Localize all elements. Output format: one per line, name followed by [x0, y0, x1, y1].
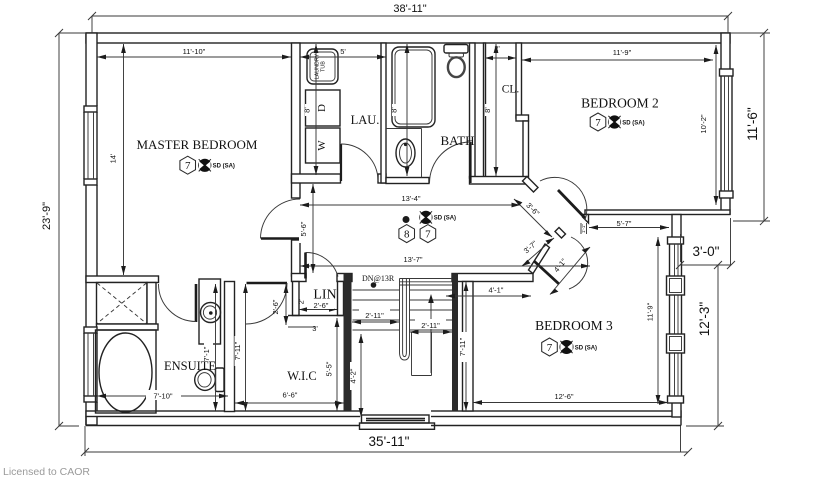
svg-text:13'-7": 13'-7" — [403, 255, 422, 264]
svg-text:3': 3' — [312, 324, 318, 333]
svg-text:14': 14' — [109, 153, 118, 163]
svg-text:11'-9": 11'-9" — [613, 48, 632, 57]
svg-text:7: 7 — [547, 342, 553, 354]
svg-text:SD (SA): SD (SA) — [434, 216, 456, 222]
svg-text:23'-9": 23'-9" — [41, 202, 53, 230]
svg-text:7'-11": 7'-11" — [458, 337, 467, 356]
svg-text:W: W — [316, 140, 328, 151]
svg-text:11'-6": 11'-6" — [745, 107, 760, 141]
svg-text:LAU.: LAU. — [351, 113, 380, 127]
svg-text:LIN: LIN — [313, 288, 336, 303]
svg-text:2': 2' — [297, 298, 306, 304]
svg-text:BEDROOM 3: BEDROOM 3 — [535, 318, 613, 333]
svg-text:2'-11": 2'-11" — [365, 311, 384, 320]
svg-text:SD (SA): SD (SA) — [213, 164, 235, 170]
svg-text:4'-2": 4'-2" — [349, 368, 358, 383]
svg-text:CL.: CL. — [502, 84, 520, 96]
svg-text:8: 8 — [404, 229, 410, 241]
svg-text:MASTER BEDROOM: MASTER BEDROOM — [137, 137, 258, 152]
svg-text:8': 8' — [390, 107, 399, 113]
svg-text:1'-1": 1'-1" — [581, 224, 586, 233]
svg-text:11'-9": 11'-9" — [646, 302, 655, 321]
svg-text:4'-1": 4'-1" — [489, 286, 504, 295]
svg-text:SD (SA): SD (SA) — [622, 120, 644, 126]
svg-text:D: D — [316, 104, 328, 112]
svg-text:BATH: BATH — [441, 133, 475, 148]
svg-text:3'-0": 3'-0" — [693, 244, 720, 259]
svg-text:38'-11": 38'-11" — [393, 3, 426, 15]
svg-text:12'-6": 12'-6" — [554, 392, 573, 401]
svg-text:8': 8' — [483, 107, 492, 113]
svg-text:Licensed to CAOR: Licensed to CAOR — [3, 466, 90, 478]
svg-text:5'-7": 5'-7" — [617, 219, 632, 228]
svg-text:10'-2": 10'-2" — [699, 114, 708, 133]
svg-text:7: 7 — [185, 160, 191, 172]
svg-text:2'-6": 2'-6" — [271, 299, 280, 314]
svg-text:SD (SA): SD (SA) — [575, 345, 597, 351]
svg-text:TUB: TUB — [321, 61, 327, 72]
svg-text:7: 7 — [595, 117, 601, 129]
svg-text:11'-10": 11'-10" — [183, 47, 206, 56]
svg-text:7'-11": 7'-11" — [233, 341, 242, 360]
svg-text:13'-4": 13'-4" — [401, 194, 420, 203]
svg-text:35'-11": 35'-11" — [369, 434, 410, 449]
svg-text:DN@13R: DN@13R — [362, 274, 395, 283]
svg-text:12'-3": 12'-3" — [697, 302, 712, 337]
svg-text:BEDROOM 2: BEDROOM 2 — [581, 96, 659, 111]
svg-text:5'-6": 5'-6" — [299, 221, 308, 236]
svg-text:2'-11": 2'-11" — [421, 321, 440, 330]
svg-text:W.I.C: W.I.C — [287, 369, 316, 383]
svg-text:ENSUITE: ENSUITE — [164, 359, 216, 373]
svg-text:6'-6": 6'-6" — [283, 391, 298, 400]
svg-text:5'-5": 5'-5" — [325, 361, 334, 376]
svg-text:7: 7 — [425, 229, 431, 241]
svg-text:8': 8' — [303, 107, 312, 113]
svg-text:7'-10": 7'-10" — [153, 392, 172, 401]
svg-text:5': 5' — [340, 47, 346, 56]
